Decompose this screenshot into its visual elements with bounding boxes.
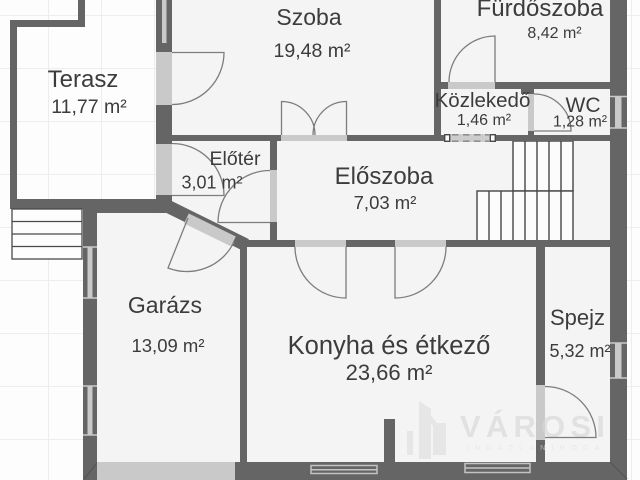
svg-text:VÁROSI: VÁROSI	[460, 409, 610, 444]
svg-text:8,42 m²: 8,42 m²	[527, 25, 582, 42]
svg-text:3,01 m²: 3,01 m²	[181, 173, 242, 193]
svg-text:23,66 m²: 23,66 m²	[346, 360, 433, 385]
svg-text:Előszoba: Előszoba	[335, 163, 434, 190]
svg-text:Terasz: Terasz	[48, 66, 119, 93]
svg-text:1,46 m²: 1,46 m²	[457, 112, 512, 129]
svg-text:Szoba: Szoba	[276, 4, 341, 30]
svg-text:Előtér: Előtér	[210, 148, 261, 170]
svg-text:13,09 m²: 13,09 m²	[131, 335, 204, 356]
svg-text:19,48 m²: 19,48 m²	[274, 40, 351, 62]
svg-text:Konyha és étkező: Konyha és étkező	[288, 332, 491, 360]
svg-text:1,28 m²: 1,28 m²	[553, 114, 608, 131]
svg-text:11,77 m²: 11,77 m²	[51, 96, 127, 118]
svg-text:Fürdőszoba: Fürdőszoba	[477, 0, 604, 22]
svg-text:Garázs: Garázs	[128, 292, 202, 318]
svg-text:Spejz: Spejz	[550, 305, 605, 330]
svg-text:INGATLANIRODA: INGATLANIRODA	[467, 443, 606, 452]
svg-text:Közlekedő: Közlekedő	[435, 89, 531, 112]
svg-text:5,32 m²: 5,32 m²	[549, 341, 610, 361]
svg-text:7,03 m²: 7,03 m²	[354, 192, 417, 213]
